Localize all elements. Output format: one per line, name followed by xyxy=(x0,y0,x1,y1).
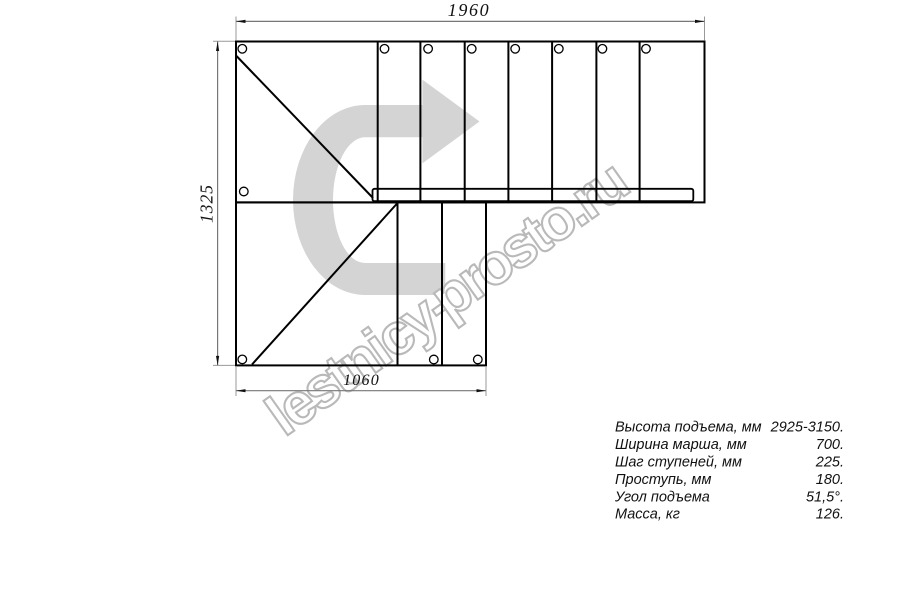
svg-text:51,5°.: 51,5°. xyxy=(806,490,844,506)
svg-text:1060: 1060 xyxy=(343,372,380,389)
svg-text:Шаг ступеней, мм: Шаг ступеней, мм xyxy=(615,454,742,470)
svg-text:Угол подъема: Угол подъема xyxy=(614,490,710,506)
svg-text:225.: 225. xyxy=(815,454,844,470)
svg-text:Ширина марша, мм: Ширина марша, мм xyxy=(615,437,747,453)
svg-text:1960: 1960 xyxy=(448,0,490,20)
svg-text:Масса, кг: Масса, кг xyxy=(615,507,680,523)
svg-text:Проступь, мм: Проступь, мм xyxy=(615,472,711,488)
svg-text:126.: 126. xyxy=(816,507,844,523)
svg-text:1325: 1325 xyxy=(197,184,217,223)
svg-text:180.: 180. xyxy=(816,472,844,488)
svg-text:Высота подъема, мм: Высота подъема, мм xyxy=(615,420,762,436)
svg-text:2925-3150.: 2925-3150. xyxy=(770,420,844,436)
svg-text:700.: 700. xyxy=(816,437,844,453)
